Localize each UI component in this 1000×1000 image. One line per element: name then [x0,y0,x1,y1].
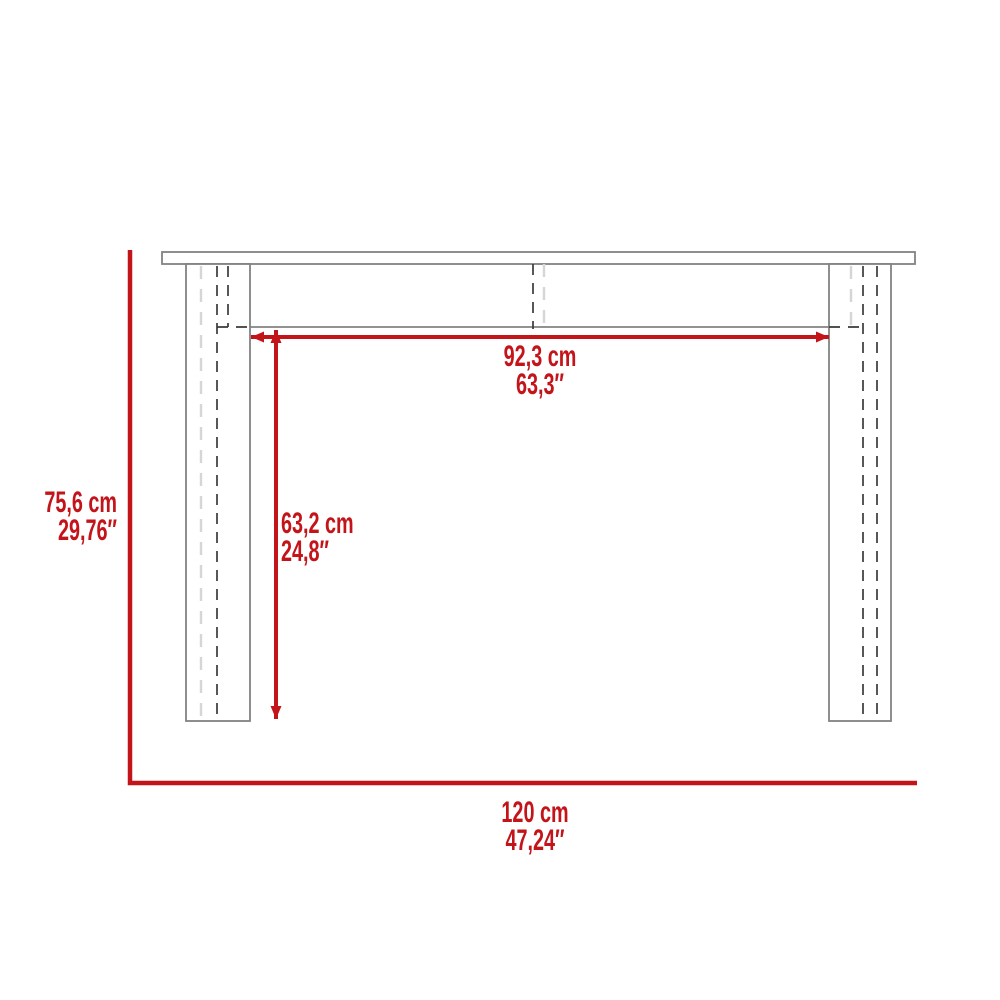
inner-width-label: 92,3 cm 63,3″ [408,343,672,399]
overall-width-label: 120 cm 47,24″ [403,799,667,855]
overall-height-cm: 75,6 cm [11,489,117,517]
overall-height-label: 75,6 cm 29,76″ [11,489,117,545]
dimension-diagram: 75,6 cm 29,76″ 92,3 cm 63,3″ 63,2 cm 24,… [0,0,1000,1000]
overall-width-cm: 120 cm [403,799,667,827]
inner-width-inches: 63,3″ [408,371,672,399]
inner-height-cm: 63,2 cm [281,510,479,538]
inner-height-label: 63,2 cm 24,8″ [281,510,479,566]
tabletop [162,252,915,264]
overall-width-inches: 47,24″ [403,827,667,855]
inner-width-cm: 92,3 cm [408,343,672,371]
inner-height-inches: 24,8″ [281,538,479,566]
overall-height-inches: 29,76″ [11,517,117,545]
right-leg [829,264,891,721]
left-leg [186,264,250,721]
